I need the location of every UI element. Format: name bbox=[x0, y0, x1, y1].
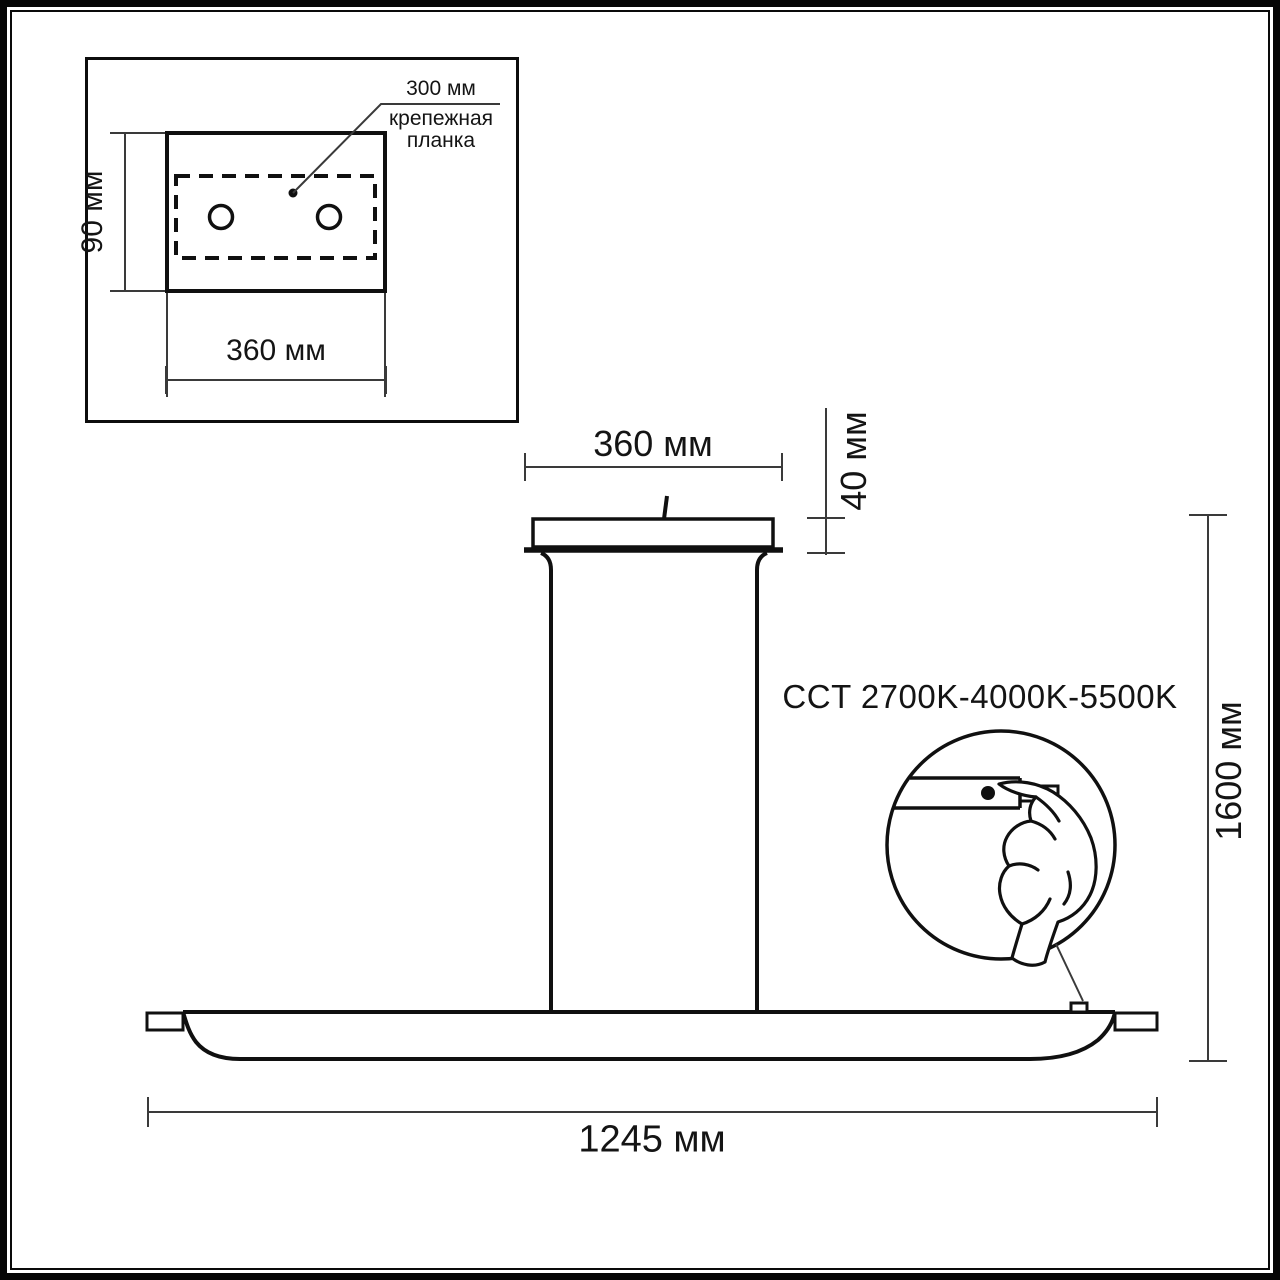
inset-canopy-top-view bbox=[167, 133, 385, 291]
stem bbox=[541, 553, 767, 1012]
cct-button bbox=[1071, 1003, 1087, 1012]
touch-button-dot bbox=[981, 786, 995, 800]
inset-plate-name-label: крепежная планка bbox=[389, 108, 493, 152]
light-bar-body bbox=[183, 1012, 1115, 1059]
inset-plate-name-line1: крепежная bbox=[389, 108, 493, 130]
light-bar bbox=[147, 1003, 1157, 1059]
inset-width-label: 360 мм bbox=[226, 334, 326, 368]
inset-canopy-rect bbox=[167, 133, 385, 291]
total-height-label: 1600 мм bbox=[1208, 701, 1250, 841]
canopy-height-label: 40 мм bbox=[833, 411, 875, 511]
cct-range-label: CCT 2700K-4000K-5500K bbox=[782, 678, 1177, 716]
inset-height-label: 90 мм bbox=[76, 171, 110, 254]
cct-touch-detail bbox=[887, 731, 1115, 965]
bar-length-label: 1245 мм bbox=[578, 1119, 725, 1162]
canopy-width-label: 360 мм bbox=[593, 423, 713, 465]
inset-screw-hole-left bbox=[210, 206, 233, 229]
inset-mounting-plate-dashed bbox=[176, 176, 375, 258]
light-bar-tab-left bbox=[147, 1013, 183, 1030]
inset-plate-offset-label: 300 мм bbox=[406, 78, 476, 100]
detail-leader-line bbox=[1056, 944, 1083, 1001]
suspension-pin-icon bbox=[664, 496, 667, 519]
inset-screw-hole-right bbox=[318, 206, 341, 229]
canopy bbox=[524, 496, 783, 550]
inset-plate-name-line2: планка bbox=[389, 130, 493, 152]
drawing-canvas bbox=[0, 0, 1280, 1280]
technical-drawing-page: 90 мм 360 мм 300 мм крепежная планка 360… bbox=[0, 0, 1280, 1280]
light-bar-tab-right bbox=[1115, 1013, 1157, 1030]
canopy-body bbox=[533, 519, 773, 547]
dim-inset-height bbox=[110, 133, 165, 291]
